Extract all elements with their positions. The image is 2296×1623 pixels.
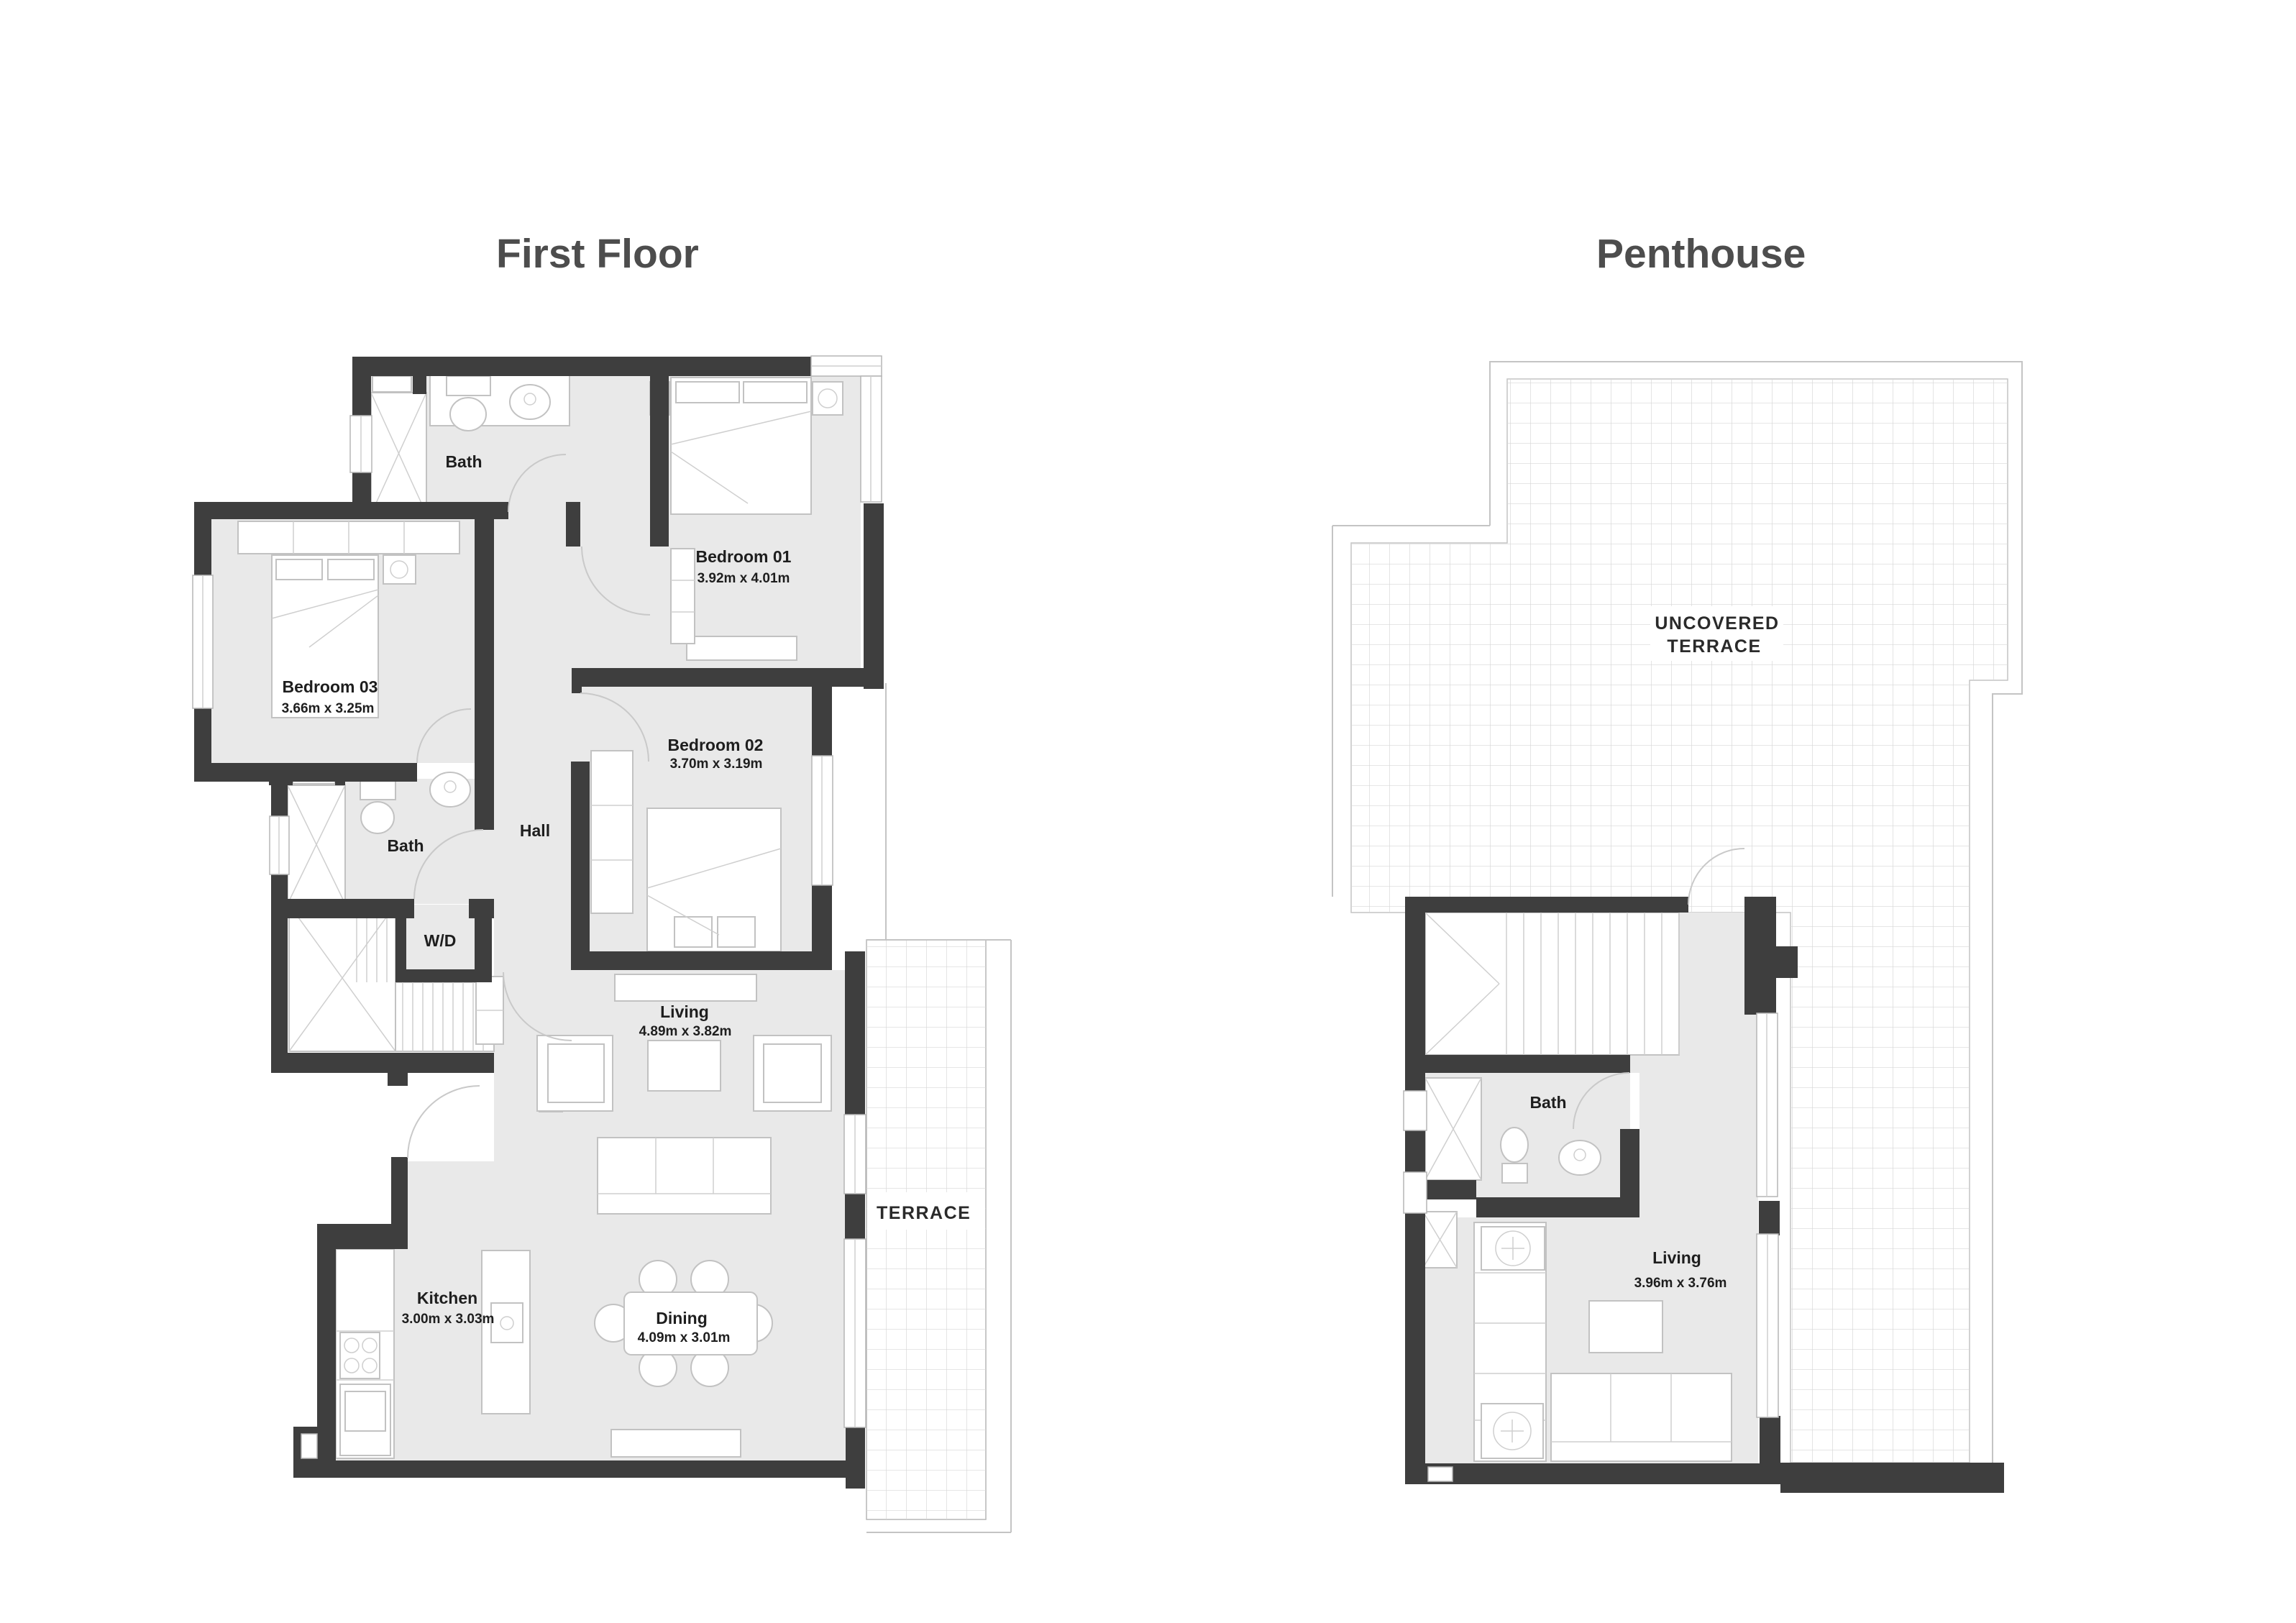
svg-text:W/D: W/D [424,931,457,950]
svg-text:Bedroom 03: Bedroom 03 [283,677,378,696]
svg-text:3.96m x 3.76m: 3.96m x 3.76m [1634,1276,1727,1291]
svg-text:Penthouse: Penthouse [1596,231,1806,277]
svg-text:Bedroom 01: Bedroom 01 [696,547,792,566]
svg-text:TERRACE: TERRACE [1667,636,1761,657]
svg-text:Hall: Hall [520,821,550,840]
svg-text:Bath: Bath [1529,1093,1566,1112]
svg-text:Bedroom 02: Bedroom 02 [668,736,764,754]
svg-text:Kitchen: Kitchen [417,1289,477,1307]
svg-text:Bath: Bath [387,836,424,855]
svg-text:4.09m x 3.01m: 4.09m x 3.01m [638,1330,731,1345]
svg-text:Living: Living [1652,1248,1701,1267]
svg-text:4.89m x 3.82m: 4.89m x 3.82m [639,1024,732,1039]
svg-text:3.66m x 3.25m: 3.66m x 3.25m [282,701,375,716]
svg-text:3.92m x 4.01m: 3.92m x 4.01m [698,571,790,586]
svg-text:Living: Living [660,1002,709,1021]
svg-text:TERRACE: TERRACE [877,1203,971,1223]
svg-text:Bath: Bath [445,452,482,471]
svg-text:Dining: Dining [656,1309,708,1327]
svg-text:3.00m x 3.03m: 3.00m x 3.03m [402,1312,495,1327]
svg-text:3.70m x 3.19m: 3.70m x 3.19m [670,756,763,772]
svg-text:First Floor: First Floor [496,231,699,277]
svg-text:UNCOVERED: UNCOVERED [1655,613,1779,634]
